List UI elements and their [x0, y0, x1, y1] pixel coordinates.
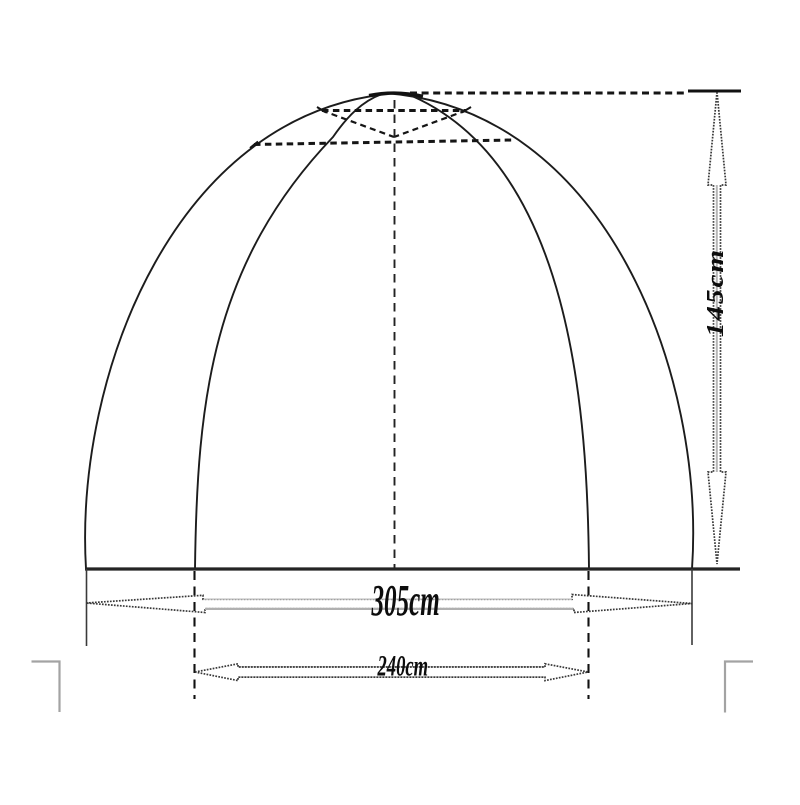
svg-text:305cm: 305cm: [371, 576, 440, 625]
svg-text:145cm: 145cm: [701, 248, 728, 337]
svg-text:240cm: 240cm: [377, 650, 428, 682]
